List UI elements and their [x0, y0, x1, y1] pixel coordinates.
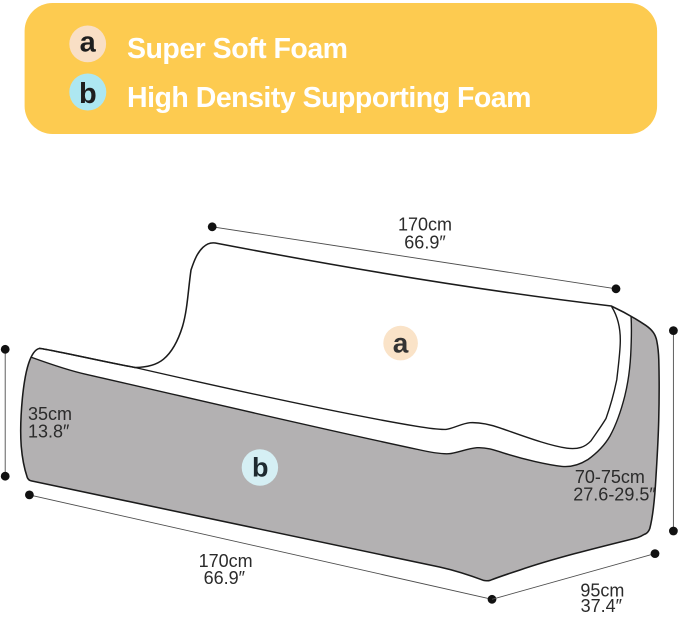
svg-text:170cm: 170cm [398, 215, 452, 235]
svg-text:66.9″: 66.9″ [404, 233, 446, 253]
svg-text:High Density Supporting Foam: High Density Supporting Foam [127, 82, 531, 114]
svg-text:Super Soft Foam: Super Soft Foam [127, 33, 348, 65]
svg-text:66.9″: 66.9″ [204, 568, 246, 588]
svg-text:37.4″: 37.4″ [581, 596, 623, 616]
svg-text:b: b [252, 453, 269, 483]
svg-text:b: b [79, 78, 97, 110]
svg-text:a: a [80, 26, 97, 58]
svg-text:13.8″: 13.8″ [28, 422, 70, 442]
svg-text:27.6-29.5″: 27.6-29.5″ [573, 485, 656, 505]
svg-text:a: a [393, 327, 409, 358]
